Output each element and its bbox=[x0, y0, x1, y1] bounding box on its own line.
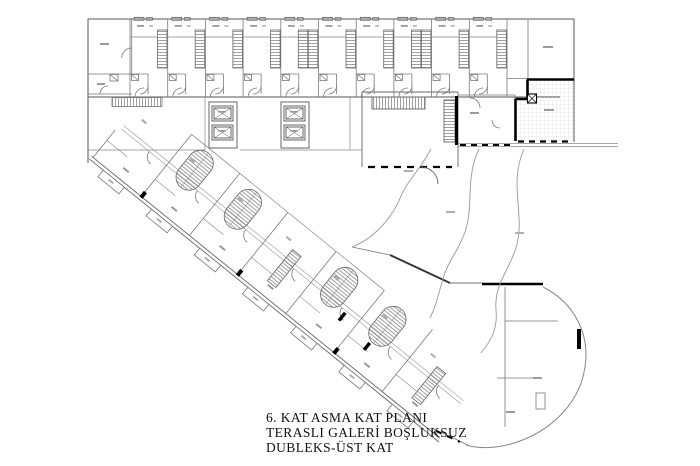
hotel-unit bbox=[356, 17, 393, 97]
hotel-unit bbox=[319, 17, 356, 97]
hotel-unit bbox=[243, 17, 280, 97]
elevator-cores bbox=[209, 102, 309, 148]
elevator-pair bbox=[281, 102, 309, 148]
caption-line-2: TERASLI GALERİ BOŞLUKSUZ bbox=[266, 426, 467, 441]
diagonal-room-band bbox=[84, 94, 492, 449]
hotel-unit bbox=[205, 17, 242, 97]
hotel-unit bbox=[130, 17, 167, 97]
floor-plan-page: 6. KAT ASMA KAT PLANI TERASLI GALERİ BOŞ… bbox=[0, 0, 700, 466]
rounded-end-wall bbox=[466, 287, 586, 448]
caption-line-3: DUBLEKS-ÜST KAT bbox=[266, 441, 467, 456]
caption: 6. KAT ASMA KAT PLANI TERASLI GALERİ BOŞ… bbox=[266, 411, 467, 456]
duplex-unit bbox=[229, 211, 336, 322]
hotel-unit bbox=[394, 17, 431, 97]
terrace-area bbox=[516, 80, 575, 142]
duplex-unit bbox=[86, 110, 170, 198]
hotel-unit bbox=[469, 17, 506, 97]
top-room-band bbox=[130, 17, 506, 97]
elevator-pair bbox=[209, 102, 237, 148]
hotel-unit bbox=[168, 17, 205, 97]
terrace-side-room bbox=[458, 95, 515, 145]
floor-plan-drawing bbox=[0, 0, 700, 466]
duplex-unit bbox=[182, 173, 288, 284]
hotel-unit bbox=[432, 17, 469, 97]
hotel-unit bbox=[281, 17, 318, 97]
caption-line-1: 6. KAT ASMA KAT PLANI bbox=[266, 411, 467, 426]
left-end-rooms bbox=[88, 19, 162, 107]
